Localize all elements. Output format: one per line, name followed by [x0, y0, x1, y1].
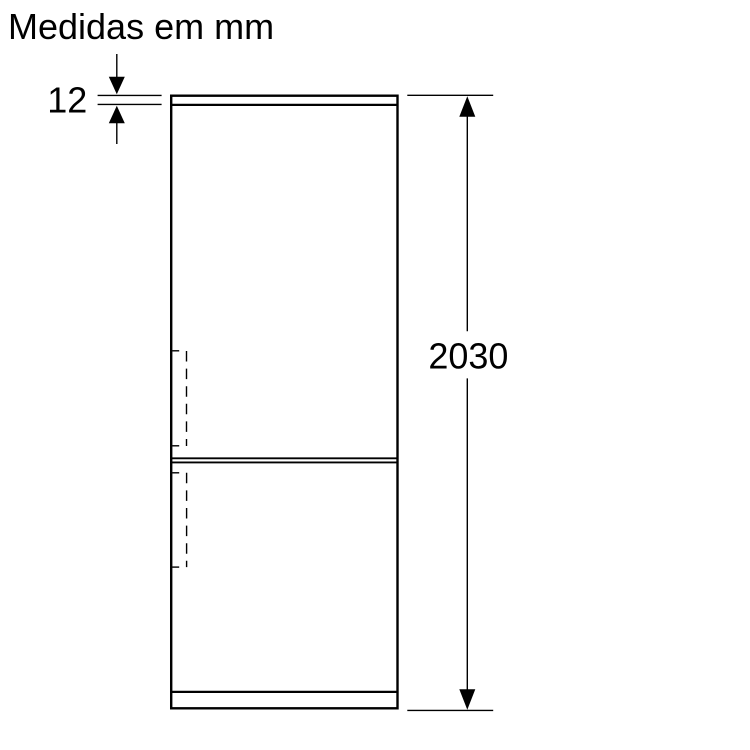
svg-text:12: 12 [47, 80, 87, 121]
svg-text:2030: 2030 [428, 336, 508, 377]
svg-text:Medidas em mm: Medidas em mm [8, 6, 274, 47]
